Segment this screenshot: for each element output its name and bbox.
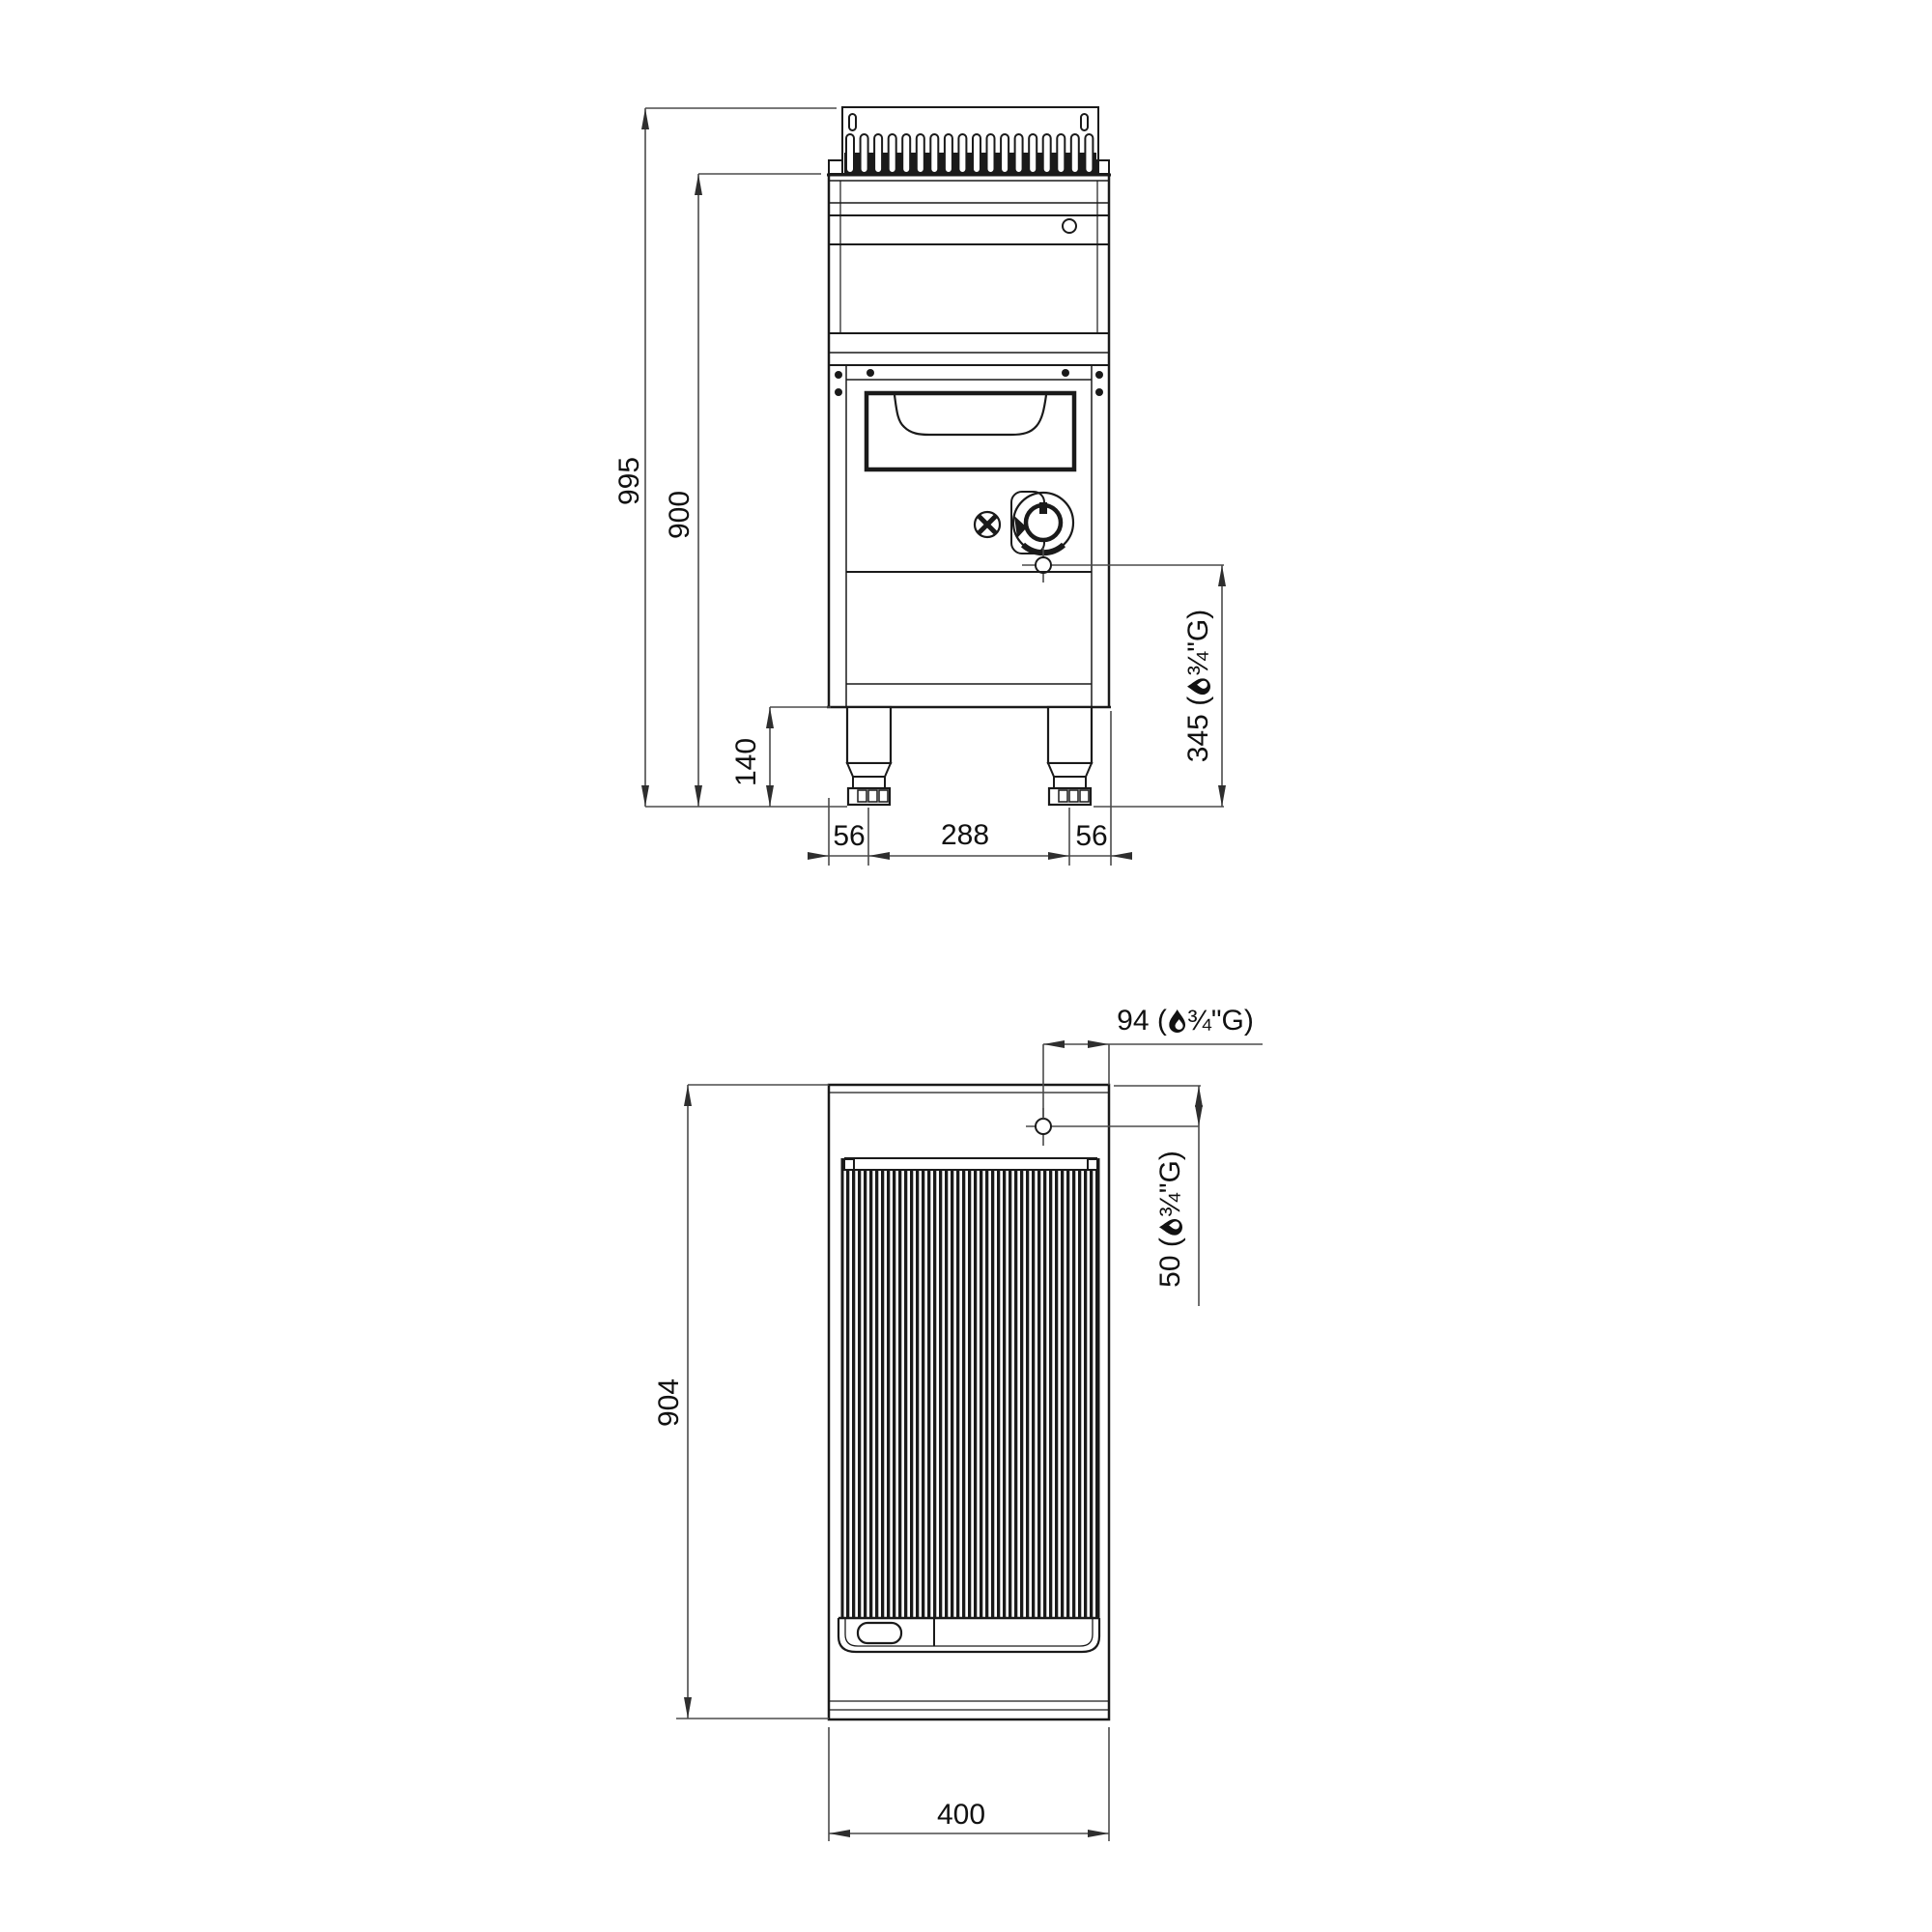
- dim-width: 400: [937, 1801, 985, 1830]
- dim-body-height: 900: [666, 491, 695, 539]
- dim-body-height-value: 900: [666, 491, 695, 539]
- gas-offset-right-post: ¾"G): [1187, 1007, 1254, 1036]
- dim-foot-offset-left: 56: [833, 822, 865, 851]
- dim-gas-connection-height: 345 (¾"G): [1184, 610, 1213, 762]
- grill-grate-plan: [838, 1158, 1099, 1618]
- tray-handle: [858, 1623, 901, 1643]
- dimension-drawing: 995 900 140 56 288 56 345 (¾"G) 904 400 …: [0, 0, 1932, 1932]
- control-knob: [1011, 492, 1073, 554]
- gas-offset-right-pre: 94 (: [1117, 1007, 1167, 1036]
- front-dimension-lines: [641, 108, 1226, 866]
- dim-foot-spacing-value: 288: [941, 821, 989, 850]
- dim-gas-offset-right: 94 (¾"G): [1117, 1007, 1254, 1036]
- dim-depth-value: 904: [655, 1378, 684, 1427]
- dim-foot-offset-right: 56: [1075, 822, 1107, 851]
- gas-height-pre: 345 (: [1184, 696, 1213, 762]
- gas-flame-icon: [1169, 1009, 1185, 1033]
- dim-foot-spacing: 288: [941, 821, 989, 850]
- pilot-hole: [1063, 219, 1076, 233]
- dim-width-value: 400: [937, 1801, 985, 1830]
- front-view: [641, 107, 1226, 866]
- gas-offset-top-post: ¾"G): [1156, 1151, 1185, 1217]
- gas-offset-top-pre: 50 (: [1156, 1237, 1185, 1288]
- piezo-igniter: [975, 512, 1000, 537]
- dim-leg-height-value: 140: [732, 738, 761, 786]
- drawing-linework: [0, 0, 1932, 1932]
- gas-flame-icon: [1187, 678, 1210, 695]
- dim-overall-height-value: 995: [615, 457, 644, 505]
- drawer: [867, 393, 1074, 469]
- dim-leg-height: 140: [732, 738, 761, 786]
- dim-overall-height: 995: [615, 457, 644, 505]
- dim-foot-offset-right-value: 56: [1075, 822, 1107, 851]
- dim-foot-offset-left-value: 56: [833, 822, 865, 851]
- right-leg: [1048, 707, 1092, 805]
- dim-depth: 904: [655, 1378, 684, 1427]
- gas-flame-icon: [1159, 1219, 1182, 1236]
- left-leg: [847, 707, 891, 805]
- base-cabinet: [827, 365, 1224, 707]
- gas-height-post: ¾"G): [1184, 610, 1213, 676]
- dim-gas-offset-top: 50 (¾"G): [1156, 1151, 1185, 1288]
